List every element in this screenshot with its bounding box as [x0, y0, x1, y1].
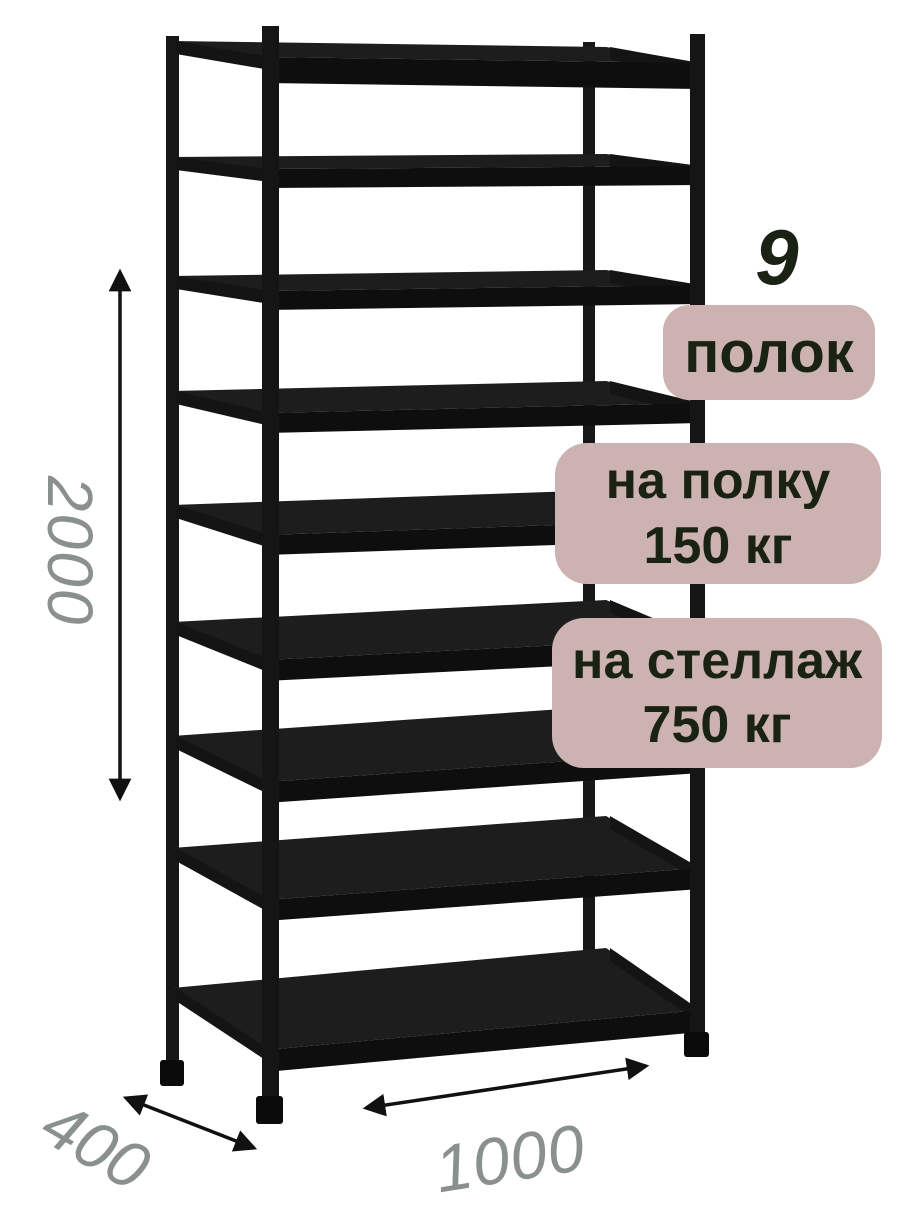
- shelf-count-badge: полок: [663, 305, 875, 400]
- per-shelf-load-line1: на полку: [606, 449, 831, 513]
- width-dimension-arrow: [366, 1066, 646, 1108]
- height-dimension-label: 2000: [33, 476, 107, 626]
- per-rack-load-badge: на стеллаж 750 кг: [552, 618, 882, 768]
- per-shelf-load-badge: на полку 150 кг: [555, 443, 881, 584]
- shelf-count-number: 9: [727, 212, 827, 302]
- product-image-canvas: 2000 400 1000 9 полок на полку 150 кг на…: [0, 0, 900, 1200]
- shelf-count-badge-label: полок: [684, 319, 854, 386]
- per-rack-load-line2: 750 кг: [643, 693, 792, 757]
- per-rack-load-line1: на стеллаж: [572, 629, 862, 693]
- rack-illustration: [0, 0, 900, 1200]
- shelf-front-bar: [266, 166, 700, 188]
- per-shelf-load-line2: 150 кг: [644, 514, 793, 578]
